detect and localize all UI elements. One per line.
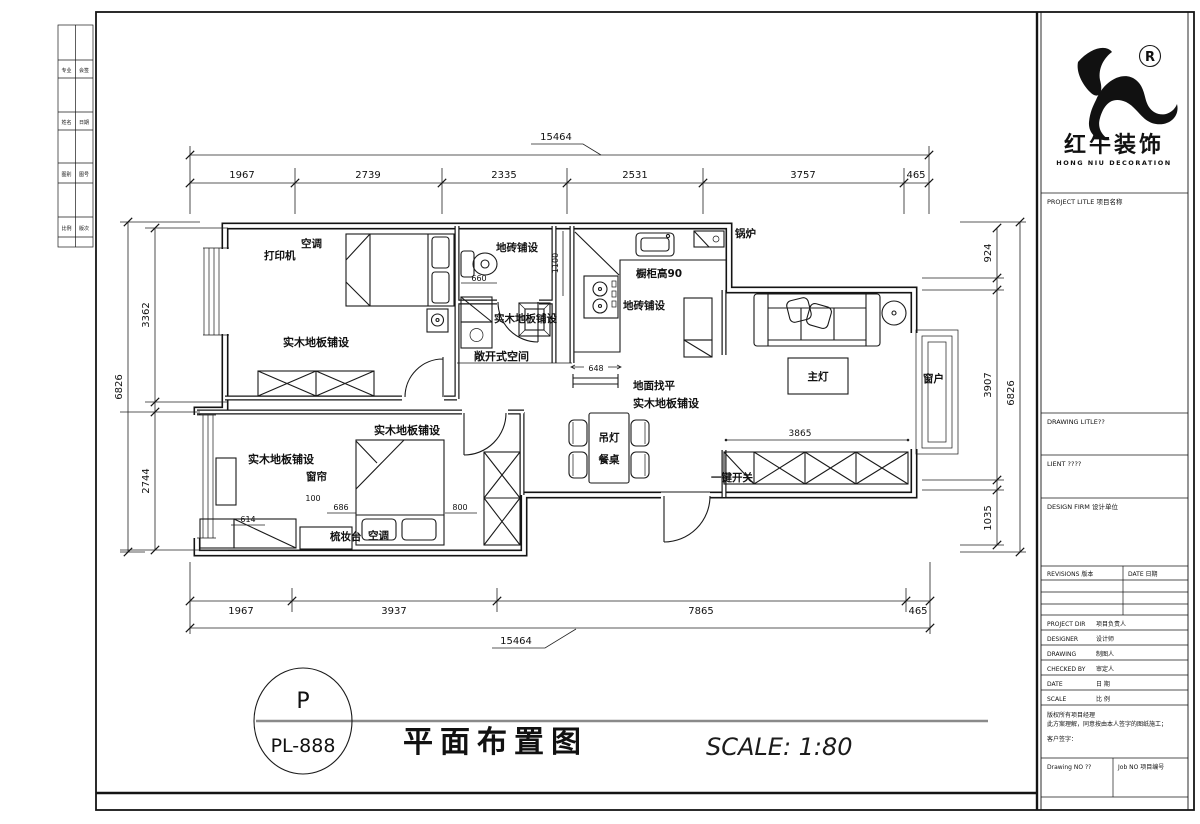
label-main-light: 主灯 xyxy=(808,370,829,383)
label-study-ac: 空调 xyxy=(301,237,322,250)
title-bar: P PL-888 平面布置图 SCALE: 1:80 xyxy=(254,668,988,774)
radiator xyxy=(216,458,236,505)
field-cn: 日 期 xyxy=(1096,680,1110,688)
drawing-sheet: 专业 会签 姓名 日期 图别 图号 比例 版次 xyxy=(0,0,1200,824)
note-line-1: 版权所有项目经理 xyxy=(1047,711,1095,719)
panel-design-firm: DESIGN FIRM 设计单位 xyxy=(1047,502,1118,511)
field-en: DESIGNER xyxy=(1047,636,1078,643)
label-curtain: 窗帘 xyxy=(306,470,327,483)
boiler-unit xyxy=(694,231,724,247)
dim-left-total: 6826 xyxy=(114,374,125,399)
dim-left-2: 2744 xyxy=(141,468,152,493)
toilet-bowl xyxy=(473,253,497,275)
dim-top-6: 465 xyxy=(906,170,925,181)
dim-686: 686 xyxy=(333,503,348,512)
pillow xyxy=(432,237,449,268)
dim-top-total: 15464 xyxy=(540,132,572,143)
revisions-header: REVISIONS 版本 xyxy=(1047,570,1093,578)
dim-right-3: 1035 xyxy=(983,505,994,530)
dim-bottom-1: 1967 xyxy=(228,606,253,617)
dim-bottom-4: 465 xyxy=(908,606,927,617)
bubble-letter: P xyxy=(296,689,309,714)
panel-drawing-title: DRAWING LITLE?? xyxy=(1047,418,1105,426)
dim-bottom-2: 3937 xyxy=(381,606,406,617)
drawing-no: Drawing NO ?? xyxy=(1047,764,1091,771)
label-window: 窗户 xyxy=(923,372,944,385)
dim-top-5: 3757 xyxy=(790,170,815,181)
study-door xyxy=(405,357,443,397)
date-header: DATE 日期 xyxy=(1128,570,1158,578)
field-cn: 制图人 xyxy=(1096,650,1114,658)
field-en: DATE xyxy=(1047,681,1063,688)
label-switch: 一键开关 xyxy=(711,471,753,484)
dim-3865: 3865 xyxy=(789,429,812,439)
label-dresser: 梳妆台 xyxy=(329,530,362,543)
strip-cell: 图别 xyxy=(61,171,71,178)
label-hall-floor: 实木地板铺设 xyxy=(633,396,700,410)
dim-top-4: 2531 xyxy=(622,170,647,181)
strip-cell: 专业 xyxy=(61,67,71,74)
living-bay-window xyxy=(916,330,958,454)
dim-top-3: 2335 xyxy=(491,170,516,181)
field-cn: 审定人 xyxy=(1096,665,1114,673)
dim-left-1: 3362 xyxy=(141,302,152,327)
corner-cabinet xyxy=(200,519,234,548)
label-study-floor: 实木地板铺设 xyxy=(283,335,350,349)
dimensions-top: 15464 1967 2739 2335 2531 3757 465 xyxy=(186,132,933,214)
dim-right-1: 924 xyxy=(983,243,994,262)
number-row: Drawing NO ?? Job NO 项目编号 xyxy=(1041,758,1188,797)
label-dining-table: 餐桌 xyxy=(598,453,620,466)
chair xyxy=(631,420,649,446)
study-bed xyxy=(346,234,454,306)
label-kitchen-cabinet: 橱柜高90 xyxy=(636,267,682,280)
dimensions-right: 924 3907 1035 6826 xyxy=(922,218,1026,556)
panel-project-title: PROJECT LITLE 项目名称 xyxy=(1047,197,1123,206)
field-en: SCALE xyxy=(1047,696,1066,703)
label-open-space: 敞开式空间 xyxy=(474,349,529,363)
logo-cn: 红牛装饰 xyxy=(1064,132,1164,158)
label-bath-tile: 地砖铺设 xyxy=(496,241,538,254)
label-printer: 打印机 xyxy=(264,249,296,262)
label-bed2-ac: 空调 xyxy=(368,529,389,542)
panel-client: LIENT ???? xyxy=(1047,460,1081,468)
drawing-title: 平面布置图 xyxy=(403,725,588,760)
label-boiler: 锅炉 xyxy=(735,227,756,240)
drawing-scale: SCALE: 1:80 xyxy=(706,733,853,761)
chair xyxy=(569,420,587,446)
washing-machine xyxy=(461,322,492,348)
dim-800: 800 xyxy=(452,503,467,512)
throw-pillow xyxy=(786,297,813,324)
title-block: R 红牛装饰 HONG NIU DECORATION PROJECT LITLE… xyxy=(1041,46,1188,798)
dim-bottom-total: 15464 xyxy=(500,636,532,647)
field-rows: PROJECT DIR 项目负责人 DESIGNER 设计师 DRAWING 制… xyxy=(1041,620,1188,705)
label-pendant: 吊灯 xyxy=(599,431,620,444)
job-no: Job NO 项目编号 xyxy=(1117,763,1164,771)
fridge xyxy=(684,298,712,340)
dining-furniture xyxy=(569,413,649,483)
field-en: PROJECT DIR xyxy=(1047,621,1085,628)
bedroom2-door xyxy=(464,413,506,455)
field-cn: 项目负责人 xyxy=(1096,620,1126,628)
dim-bottom-3: 7865 xyxy=(688,606,713,617)
dining-table-shape xyxy=(589,413,629,483)
strip-cell: 图号 xyxy=(79,172,89,178)
chair xyxy=(569,452,587,478)
chair xyxy=(631,452,649,478)
strip-cell: 日期 xyxy=(79,120,89,126)
sofa xyxy=(754,294,880,346)
label-bed2-floor: 实木地板铺设 xyxy=(248,452,315,466)
field-en: CHECKED BY xyxy=(1047,666,1086,673)
label-bed2-floor-top: 实木地板铺设 xyxy=(374,423,441,437)
logo-mark xyxy=(1089,76,1178,140)
field-en: DRAWING xyxy=(1047,651,1077,658)
dim-100: 100 xyxy=(305,494,320,503)
walls xyxy=(197,226,914,553)
dim-right-total: 6826 xyxy=(1006,380,1017,405)
dim-660: 660 xyxy=(471,274,486,283)
side-table xyxy=(427,309,448,332)
strip-cell: 姓名 xyxy=(61,119,71,126)
label-kitchen-tile: 地砖铺设 xyxy=(623,299,665,312)
doors xyxy=(405,302,710,542)
label-floor-level: 地面找平 xyxy=(633,379,675,392)
dimensions-left: 6826 3362 2744 xyxy=(114,218,228,556)
field-cn: 设计师 xyxy=(1096,635,1114,643)
dim-614: 614 xyxy=(240,515,255,524)
kitchen-fixtures xyxy=(574,231,727,357)
note-line-3: 客户签字： xyxy=(1047,735,1077,743)
strip-cell: 比例 xyxy=(61,225,71,232)
label-laundry-floor: 实木地板铺设 xyxy=(494,312,557,325)
dim-top-2: 2739 xyxy=(355,170,380,181)
side-round-table xyxy=(882,301,906,325)
revisions-table: REVISIONS 版本 DATE 日期 xyxy=(1041,566,1188,615)
note-line-2: 此方案理解，同意按由本人签字的图纸施工； xyxy=(1047,720,1167,728)
kitchen-sliding-door xyxy=(573,374,618,388)
field-cn: 比 例 xyxy=(1096,695,1110,703)
logo: R 红牛装饰 HONG NIU DECORATION xyxy=(1056,46,1177,168)
floorplan-svg: 专业 会签 姓名 日期 图别 图号 比例 版次 xyxy=(0,0,1200,824)
dimensions-bottom: 1967 3937 7865 465 15464 xyxy=(186,562,934,648)
strip-cell: 版次 xyxy=(79,225,89,232)
dim-right-2: 3907 xyxy=(983,372,994,397)
bubble-code: PL-888 xyxy=(271,735,336,757)
registered-letter: R xyxy=(1145,50,1155,65)
pillow xyxy=(432,272,449,303)
dim-1100: 1100 xyxy=(551,253,560,273)
signature-strip: 专业 会签 姓名 日期 图别 图号 比例 版次 xyxy=(58,25,93,247)
dim-top-1: 1967 xyxy=(229,170,254,181)
logo-en: HONG NIU DECORATION xyxy=(1056,159,1171,167)
strip-cell: 会签 xyxy=(79,67,89,74)
kitchen-sink xyxy=(636,233,674,256)
living-furniture xyxy=(724,294,908,484)
dim-648: 648 xyxy=(588,364,603,373)
pillow xyxy=(402,519,436,540)
note-block: 版权所有项目经理 此方案理解，同意按由本人签字的图纸施工； 客户签字： xyxy=(1047,711,1167,743)
